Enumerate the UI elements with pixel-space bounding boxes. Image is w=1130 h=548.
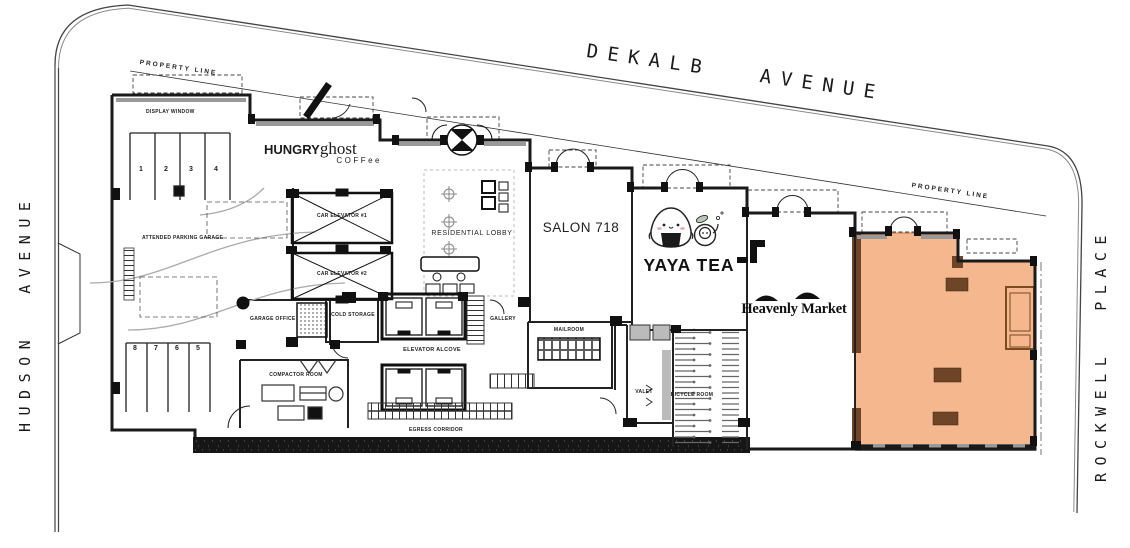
yaya-tea-mascot: [648, 206, 730, 258]
garage-office-area: [124, 248, 327, 337]
room-label-valet: VALET: [630, 390, 658, 395]
mailroom-boxes: [538, 338, 600, 360]
parking-space-number: 4: [214, 166, 218, 173]
valet-bike-area: [630, 325, 739, 446]
room-label-cold-storage: COLD STORAGE: [331, 313, 375, 318]
room-label-egress-corridor: EGRESS CORRIDOR: [398, 428, 474, 433]
column-grid-markers: [441, 186, 457, 257]
room-label-car-elevator-2: CAR ELEVATOR #2: [300, 272, 384, 277]
room-label-mailroom: MAILROOM: [549, 328, 589, 333]
heavenly-market-fixtures: [737, 240, 820, 301]
stairs: [368, 296, 534, 419]
compactor-room-equipment: [262, 360, 343, 420]
room-label-garage-office: GARAGE OFFICE: [250, 317, 294, 322]
parking-space-number: 1: [139, 166, 143, 173]
hungry-ghost-word1: HUNGRY: [264, 142, 320, 157]
room-label-compactor-room: COMPACTOR ROOM: [264, 373, 328, 378]
bike-racks: [675, 328, 739, 446]
parking-stalls: [126, 133, 230, 412]
parking-space-number: 5: [196, 345, 200, 352]
canopy-bar-icon: [306, 84, 350, 118]
convex-mirror-icon: [237, 297, 250, 310]
tenant-logo-hungry-ghost: HUNGRYghost COFFee: [264, 140, 384, 165]
tenant-label-yaya-tea: YAYA TEA: [642, 256, 736, 274]
lobby-furniture: [482, 181, 508, 212]
room-label-residential-lobby: RESIDENTIAL LOBBY: [428, 230, 516, 237]
tenant-label-heavenly-market: Heavenly Market: [740, 302, 848, 317]
lobby-desk: [421, 257, 479, 293]
room-label-car-elevator-1: CAR ELEVATOR #1: [300, 214, 384, 219]
tenant-label-salon-718: SALON 718: [536, 221, 626, 235]
room-label-attended-parking-garage: ATTENDED PARKING GARAGE: [142, 236, 208, 241]
parking-space-number: 7: [154, 345, 158, 352]
highlighted-space: [852, 233, 1036, 451]
parking-space-number: 8: [133, 345, 137, 352]
parking-space-number: 3: [189, 166, 193, 173]
parking-space-number: 2: [164, 166, 168, 173]
room-label-gallery: GALLERY: [489, 317, 517, 322]
residential-lobby-area: [421, 125, 514, 296]
parking-space-number: 6: [175, 345, 179, 352]
room-label-display-window: DISPLAY WINDOW: [146, 110, 194, 115]
plan-linework: [0, 0, 1130, 548]
floor-plan: DEKALB AVENUE HUDSON AVENUE ROCKWELL PLA…: [0, 0, 1130, 548]
room-label-bicycle-room: BICYCLE ROOM: [664, 393, 720, 398]
room-label-elevator-alcove: ELEVATOR ALCOVE: [398, 348, 466, 354]
egress-wall-strip: [193, 437, 750, 453]
logo-swash-icon: [795, 293, 820, 300]
street-label-hudson: HUDSON AVENUE: [18, 102, 34, 432]
street-label-rockwell: ROCKWELL PLACE: [1094, 192, 1110, 482]
